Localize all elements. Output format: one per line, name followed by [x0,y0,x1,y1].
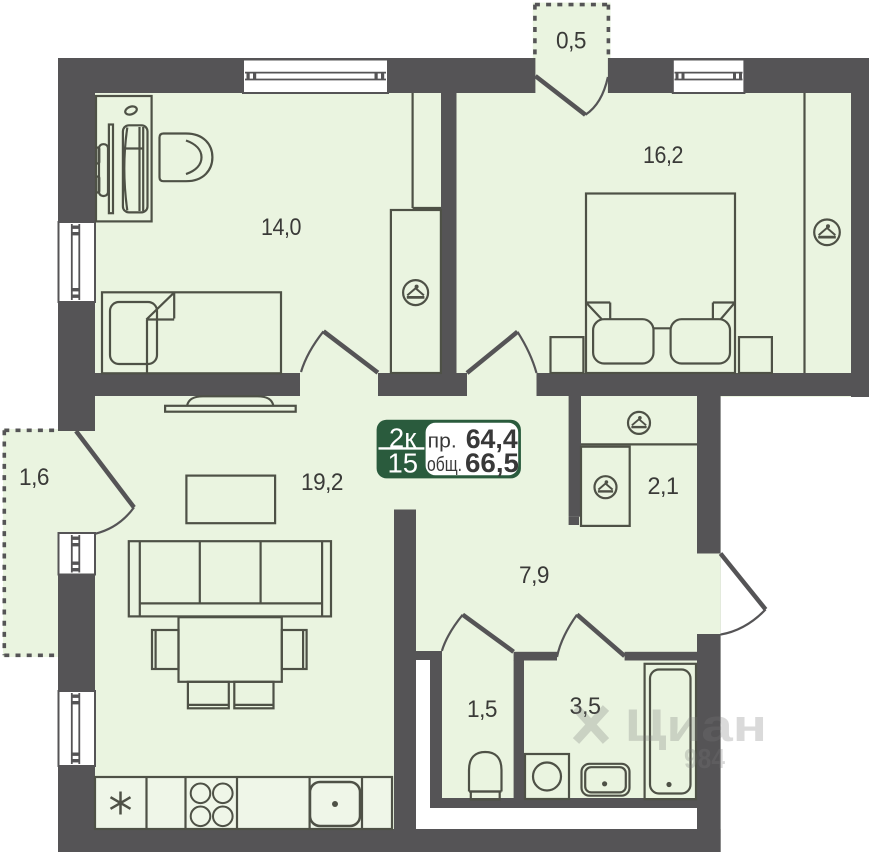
svg-text:15: 15 [388,448,419,479]
svg-text:1,6: 1,6 [19,464,49,491]
svg-text:1,5: 1,5 [467,696,497,723]
svg-text:984: 984 [684,743,725,774]
svg-text:7,9: 7,9 [519,562,549,589]
svg-text:0,5: 0,5 [556,28,586,55]
svg-text:2,1: 2,1 [648,473,679,500]
svg-text:66,5: 66,5 [465,448,519,478]
svg-text:14,0: 14,0 [261,214,301,241]
svg-text:16,2: 16,2 [643,142,683,169]
svg-text:19,2: 19,2 [301,469,343,496]
svg-text:пр.: пр. [428,430,457,452]
svg-text:общ.: общ. [427,454,462,476]
